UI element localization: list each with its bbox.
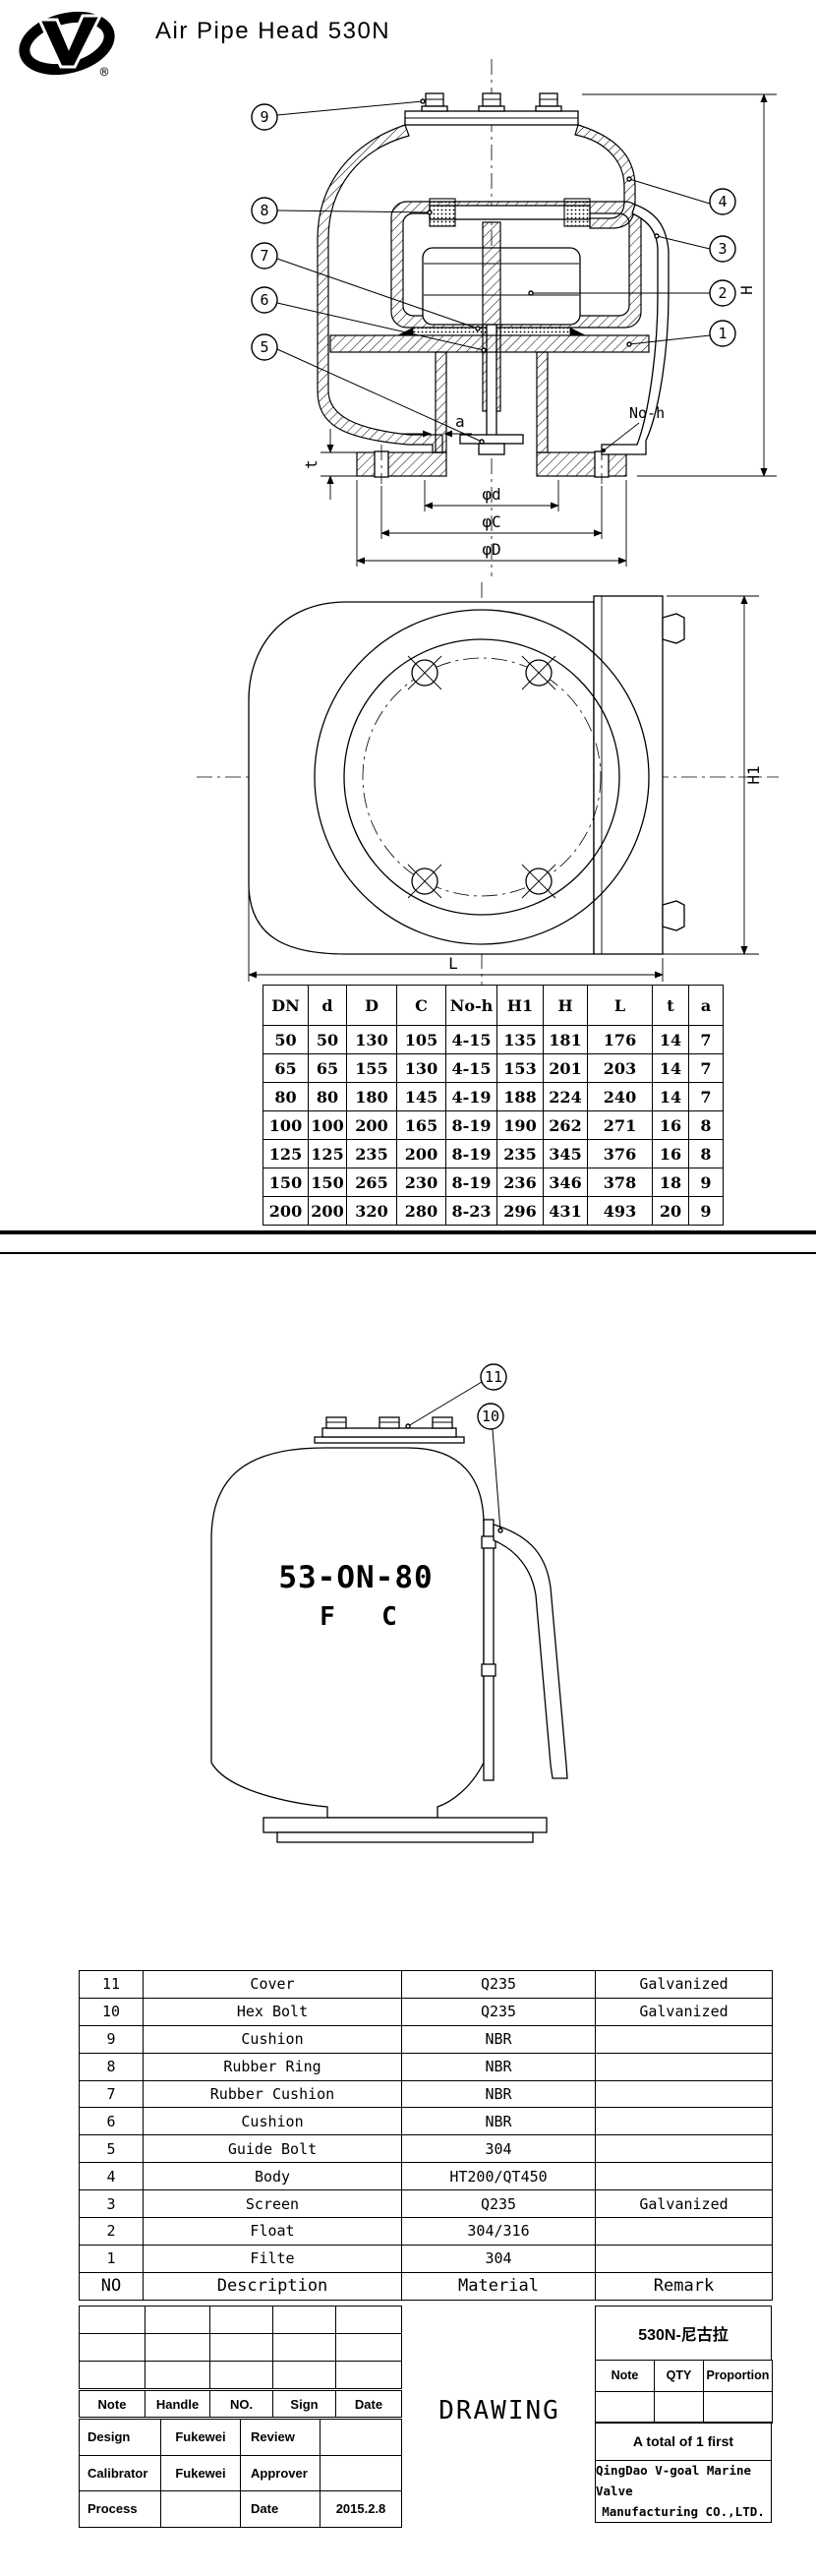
float [423, 248, 580, 325]
svg-text:10: 10 [482, 1408, 499, 1425]
table-cell [210, 2306, 273, 2334]
table-row: 1501502652308-19236346378189 [263, 1168, 724, 1197]
table-cell: 18 [653, 1168, 689, 1197]
table-cell [655, 2391, 704, 2423]
dim-H: H [737, 285, 756, 295]
table-cell: 4 [80, 2163, 144, 2190]
table-cell: 376 [588, 1140, 653, 1168]
table-row: 1001002001658-19190262271168 [263, 1111, 724, 1140]
table-cell: 304/316 [402, 2218, 596, 2246]
table-cell: 230 [397, 1168, 446, 1197]
table-row: 9CushionNBR [80, 2025, 773, 2053]
table-cell: 304 [402, 2135, 596, 2163]
table-cell: Material [402, 2272, 596, 2300]
table-cell: 65 [263, 1054, 309, 1083]
hex-bolt-bottom [663, 901, 684, 930]
table-cell: 65 [309, 1054, 347, 1083]
table-cell: 14 [653, 1026, 689, 1054]
model-label: 53-ON-80 [278, 1560, 433, 1595]
callout-1: 1 [627, 321, 735, 346]
table-cell: 8 [689, 1140, 724, 1168]
table-cell: 7 [689, 1054, 724, 1083]
flange-left [357, 452, 446, 476]
table-cell: D [347, 986, 397, 1026]
table-cell: 235 [497, 1140, 544, 1168]
table-cell: 135 [497, 1026, 544, 1054]
table-row [80, 2306, 402, 2334]
table-cell: 5 [80, 2135, 144, 2163]
table-row: 1Filte304 [80, 2245, 773, 2272]
table-cell: Handle [146, 2391, 210, 2418]
table-row: 65651551304-15153201203147 [263, 1054, 724, 1083]
screen-bolt-2 [482, 1664, 495, 1676]
table-row: 4BodyHT200/QT450 [80, 2163, 773, 2190]
table-cell: Float [144, 2218, 402, 2246]
table-cell [596, 2245, 773, 2272]
cross-section-drawing: H a t No-h φd φC φD [147, 54, 787, 580]
side-flange [594, 596, 663, 954]
table-cell: Cushion [144, 2025, 402, 2053]
table-cell: L [588, 986, 653, 1026]
table-cell: 80 [309, 1083, 347, 1111]
table-row [596, 2391, 773, 2423]
table-cell: 345 [544, 1140, 588, 1168]
table-cell: Rubber Ring [144, 2053, 402, 2080]
table-cell [273, 2306, 336, 2334]
table-row: 50501301054-15135181176147 [263, 1026, 724, 1054]
table-cell: Rubber Cushion [144, 2080, 402, 2108]
table-cell: DN [263, 986, 309, 1026]
svg-text:7: 7 [260, 247, 268, 265]
table-cell: 20 [653, 1197, 689, 1226]
table-row: 80801801454-19188224240147 [263, 1083, 724, 1111]
table-cell: 200 [397, 1140, 446, 1168]
table-cell: 431 [544, 1197, 588, 1226]
table-cell: Date [336, 2391, 402, 2418]
table-row: NoteQTYProportion [596, 2360, 773, 2391]
table-row: CalibratorFukeweiApprover [80, 2455, 402, 2491]
table-row: NoteHandleNO.SignDate [80, 2391, 402, 2418]
table-cell: 2015.2.8 [321, 2491, 402, 2528]
table-cell: 125 [263, 1140, 309, 1168]
table-cell: Hex Bolt [144, 1998, 402, 2025]
table-cell: 9 [689, 1168, 724, 1197]
dim-H1: H1 [744, 765, 763, 784]
table-cell: Note [596, 2360, 655, 2391]
table-cell: 130 [397, 1054, 446, 1083]
table-cell [336, 2362, 402, 2389]
valve-body-section [318, 93, 669, 484]
table-cell: 50 [263, 1026, 309, 1054]
table-cell: 176 [588, 1026, 653, 1054]
table-cell [596, 2025, 773, 2053]
table-cell: 200 [309, 1197, 347, 1226]
dim-no-h: No-h [629, 404, 665, 422]
svg-text:5: 5 [260, 338, 268, 356]
table-row: 5Guide Bolt304 [80, 2135, 773, 2163]
table-cell: Sign [273, 2391, 336, 2418]
table-cell: Filte [144, 2245, 402, 2272]
table-cell: t [653, 986, 689, 1026]
cover-bolts [326, 1417, 452, 1428]
vgoal-logo: ® [14, 6, 116, 81]
table-cell: Body [144, 2163, 402, 2190]
company-line-2: Manufacturing CO.,LTD. [602, 2501, 765, 2522]
table-cell: 7 [689, 1083, 724, 1111]
table-cell [146, 2306, 210, 2334]
table-cell: 240 [588, 1083, 653, 1111]
cover-plate-lip [315, 1437, 464, 1443]
table-cell: Review [241, 2420, 321, 2456]
neck-wall-right [537, 352, 548, 452]
table-cell [210, 2334, 273, 2362]
svg-text:2: 2 [718, 284, 727, 302]
title-block-signatures: DesignFukeweiReviewCalibratorFukeweiAppr… [79, 2419, 402, 2528]
table-cell: Cushion [144, 2108, 402, 2135]
title-block-right: 530N-尼古拉 NoteQTYProportion A total of 1 … [595, 2306, 772, 2523]
table-cell [146, 2362, 210, 2389]
table-cell: 271 [588, 1111, 653, 1140]
table-cell: 203 [588, 1054, 653, 1083]
table-cell: 190 [497, 1111, 544, 1140]
drawing-sheet: ® Air Pipe Head 530N [0, 0, 816, 2576]
table-cell: NO. [210, 2391, 273, 2418]
cushion-wedge-left [397, 328, 413, 335]
table-cell: 150 [309, 1168, 347, 1197]
table-cell: HT200/QT450 [402, 2163, 596, 2190]
table-cell [596, 2218, 773, 2246]
table-row: 11CoverQ235Galvanized [80, 1971, 773, 1999]
table-cell: d [309, 986, 347, 1026]
dim-t: t [302, 459, 321, 469]
table-cell [596, 2080, 773, 2108]
table-cell: Proportion [704, 2360, 773, 2391]
total-note: A total of 1 first [595, 2422, 772, 2461]
dim-phi-d: φd [482, 485, 500, 504]
table-cell: 16 [653, 1140, 689, 1168]
table-cell: 201 [544, 1054, 588, 1083]
base-flange [263, 1818, 547, 1832]
table-cell [596, 2163, 773, 2190]
table-cell: C [397, 986, 446, 1026]
table-row: ProcessDate2015.2.8 [80, 2491, 402, 2528]
table-cell [596, 2053, 773, 2080]
table-row: DNdDCNo-hH1HLta [263, 986, 724, 1026]
table-cell: 9 [689, 1197, 724, 1226]
table-cell: 105 [397, 1026, 446, 1054]
table-row: 2002003202808-23296431493209 [263, 1197, 724, 1226]
svg-text:11: 11 [485, 1368, 502, 1386]
table-cell [596, 2135, 773, 2163]
table-cell: 130 [347, 1026, 397, 1054]
table-cell: 6 [80, 2108, 144, 2135]
table-cell [336, 2334, 402, 2362]
top-bolts [422, 93, 561, 111]
table-cell: 50 [309, 1026, 347, 1054]
table-cell: 14 [653, 1054, 689, 1083]
table-cell: 493 [588, 1197, 653, 1226]
table-cell: 150 [263, 1168, 309, 1197]
table-cell [596, 2108, 773, 2135]
table-cell: 235 [347, 1140, 397, 1168]
table-cell: 11 [80, 1971, 144, 1999]
dim-phi-D: φD [482, 540, 500, 559]
table-row: 1251252352008-19235345376168 [263, 1140, 724, 1168]
table-cell: 280 [397, 1197, 446, 1226]
table-cell [80, 2306, 146, 2334]
table-row: NODescriptionMaterialRemark [80, 2272, 773, 2300]
table-cell: 200 [347, 1111, 397, 1140]
table-cell: 9 [80, 2025, 144, 2053]
table-cell: 378 [588, 1168, 653, 1197]
table-cell [146, 2334, 210, 2362]
callout-9: 9 [252, 99, 425, 130]
table-row: 7Rubber CushionNBR [80, 2080, 773, 2108]
table-cell: 265 [347, 1168, 397, 1197]
table-cell: 80 [263, 1083, 309, 1111]
table-cell: 181 [544, 1026, 588, 1054]
table-cell: 153 [497, 1054, 544, 1083]
table-cell [80, 2362, 146, 2389]
variant-c: C [381, 1602, 397, 1632]
table-cell: 320 [347, 1197, 397, 1226]
table-cell [704, 2391, 773, 2423]
svg-text:6: 6 [260, 291, 268, 309]
table-cell: QTY [655, 2360, 704, 2391]
flange-right [537, 452, 626, 476]
table-cell: H [544, 986, 588, 1026]
table-cell: 1 [80, 2245, 144, 2272]
table-cell: Remark [596, 2272, 773, 2300]
table-cell: NO [80, 2272, 144, 2300]
sheet-separator-thin [0, 1252, 816, 1254]
table-row [80, 2334, 402, 2362]
table-cell [273, 2362, 336, 2389]
sheet-separator-thick [0, 1230, 816, 1234]
table-cell: 8-23 [446, 1197, 497, 1226]
table-row [80, 2362, 402, 2389]
body-outline [211, 1448, 484, 1818]
table-cell [80, 2334, 146, 2362]
table-cell: 8-19 [446, 1168, 497, 1197]
table-cell: 2 [80, 2218, 144, 2246]
company-line-1: QingDao V-goal Marine Valve [596, 2460, 771, 2502]
top-view-drawing: H1 L [177, 570, 787, 988]
dim-L: L [448, 954, 458, 973]
table-cell [336, 2306, 402, 2334]
table-cell: 262 [544, 1111, 588, 1140]
table-cell: 4-15 [446, 1026, 497, 1054]
svg-text:4: 4 [718, 193, 727, 210]
table-cell [161, 2491, 241, 2528]
table-cell: Date [241, 2491, 321, 2528]
table-cell: NBR [402, 2025, 596, 2053]
table-cell [210, 2362, 273, 2389]
svg-text:1: 1 [718, 325, 727, 342]
table-row: 3ScreenQ235Galvanized [80, 2190, 773, 2218]
table-cell: NBR [402, 2080, 596, 2108]
table-cell: 10 [80, 1998, 144, 2025]
table-cell: 188 [497, 1083, 544, 1111]
table-cell: No-h [446, 986, 497, 1026]
screen-curtain [494, 1525, 567, 1778]
table-cell: 304 [402, 2245, 596, 2272]
variant-f: F [320, 1602, 335, 1632]
table-cell: NBR [402, 2108, 596, 2135]
dim-a: a [455, 412, 465, 431]
dim-phi-c: φC [482, 512, 500, 531]
company-name: QingDao V-goal Marine Valve Manufacturin… [595, 2460, 772, 2523]
table-row: 10Hex BoltQ235Galvanized [80, 1998, 773, 2025]
svg-text:9: 9 [260, 108, 268, 126]
table-cell: Galvanized [596, 1998, 773, 2025]
table-cell: Calibrator [80, 2455, 161, 2491]
table-cell: 8-19 [446, 1140, 497, 1168]
table-cell: Q235 [402, 1998, 596, 2025]
table-cell: 8-19 [446, 1111, 497, 1140]
title-block-header-row: NoteHandleNO.SignDate [79, 2390, 402, 2418]
table-row: DesignFukeweiReview [80, 2420, 402, 2456]
table-cell: H1 [497, 986, 544, 1026]
table-cell: Galvanized [596, 1971, 773, 1999]
table-cell: 346 [544, 1168, 588, 1197]
guide-bolt-nut [479, 444, 504, 454]
table-cell: 180 [347, 1083, 397, 1111]
rubber-ring-left [430, 199, 455, 226]
table-cell [596, 2391, 655, 2423]
table-cell: Guide Bolt [144, 2135, 402, 2163]
rubber-ring-right [564, 199, 590, 226]
table-cell: Approver [241, 2455, 321, 2491]
table-cell [273, 2334, 336, 2362]
registered-mark: ® [100, 65, 109, 81]
page-title: Air Pipe Head 530N [155, 18, 390, 45]
table-cell: 236 [497, 1168, 544, 1197]
table-cell: Q235 [402, 2190, 596, 2218]
body-plate [330, 335, 649, 352]
table-cell: Fukewei [161, 2420, 241, 2456]
table-cell: 165 [397, 1111, 446, 1140]
table-row: 6CushionNBR [80, 2108, 773, 2135]
drawing-number: 530N-尼古拉 [595, 2306, 772, 2361]
table-cell: Description [144, 2272, 402, 2300]
table-cell: Cover [144, 1971, 402, 1999]
svg-text:8: 8 [260, 202, 268, 219]
table-cell: 200 [263, 1197, 309, 1226]
qty-proportion-grid: NoteQTYProportion [595, 2360, 773, 2424]
table-cell: 4-15 [446, 1054, 497, 1083]
cover-plate [322, 1428, 456, 1437]
table-cell: Fukewei [161, 2455, 241, 2491]
table-cell: 3 [80, 2190, 144, 2218]
screen-mount-plate [484, 1520, 494, 1780]
outside-view-drawing: 53-ON-80 F C 11 10 [98, 1357, 590, 1859]
drawing-word: DRAWING [411, 2396, 588, 2426]
title-block: NoteHandleNO.SignDate DesignFukeweiRevie… [79, 2306, 772, 2528]
table-cell: 100 [263, 1111, 309, 1140]
title-block-empty-grid [79, 2306, 402, 2389]
table-cell: 125 [309, 1140, 347, 1168]
table-cell: 8 [689, 1111, 724, 1140]
table-cell: Galvanized [596, 2190, 773, 2218]
table-row: 8Rubber RingNBR [80, 2053, 773, 2080]
parts-list-table: 11CoverQ235Galvanized10Hex BoltQ235Galva… [79, 1970, 773, 2301]
table-cell: 296 [497, 1197, 544, 1226]
table-cell: a [689, 986, 724, 1026]
table-row: 2Float304/316 [80, 2218, 773, 2246]
table-cell: Screen [144, 2190, 402, 2218]
table-cell: 7 [689, 1026, 724, 1054]
dimension-table: DNdDCNo-hH1HLta 50501301054-151351811761… [262, 985, 724, 1226]
table-cell: NBR [402, 2053, 596, 2080]
base-flange-lip [277, 1832, 533, 1842]
table-cell: Design [80, 2420, 161, 2456]
table-cell: 14 [653, 1083, 689, 1111]
table-cell: 100 [309, 1111, 347, 1140]
table-cell [321, 2455, 402, 2491]
table-cell: Note [80, 2391, 146, 2418]
cushion-wedge-right [570, 328, 586, 335]
svg-text:3: 3 [718, 240, 727, 258]
table-cell: 8 [80, 2053, 144, 2080]
table-cell: 4-19 [446, 1083, 497, 1111]
table-cell: 16 [653, 1111, 689, 1140]
table-cell [321, 2420, 402, 2456]
table-cell: Process [80, 2491, 161, 2528]
table-cell: Q235 [402, 1971, 596, 1999]
table-cell: 155 [347, 1054, 397, 1083]
table-cell: 145 [397, 1083, 446, 1111]
table-cell: 224 [544, 1083, 588, 1111]
table-cell: 7 [80, 2080, 144, 2108]
hex-bolt-top [663, 614, 684, 643]
